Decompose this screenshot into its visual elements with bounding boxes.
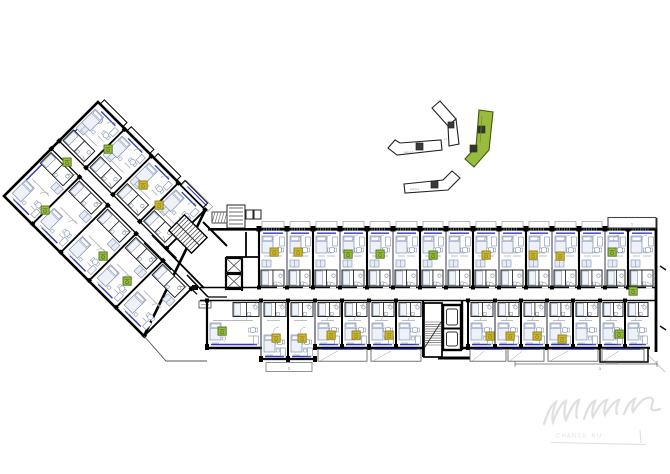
svg-text:корпус 3: корпус 3: [404, 152, 414, 154]
svg-text:C H A N C E . R U: C H A N C E . R U: [556, 434, 601, 440]
svg-text:корпус 2: корпус 2: [410, 189, 420, 191]
